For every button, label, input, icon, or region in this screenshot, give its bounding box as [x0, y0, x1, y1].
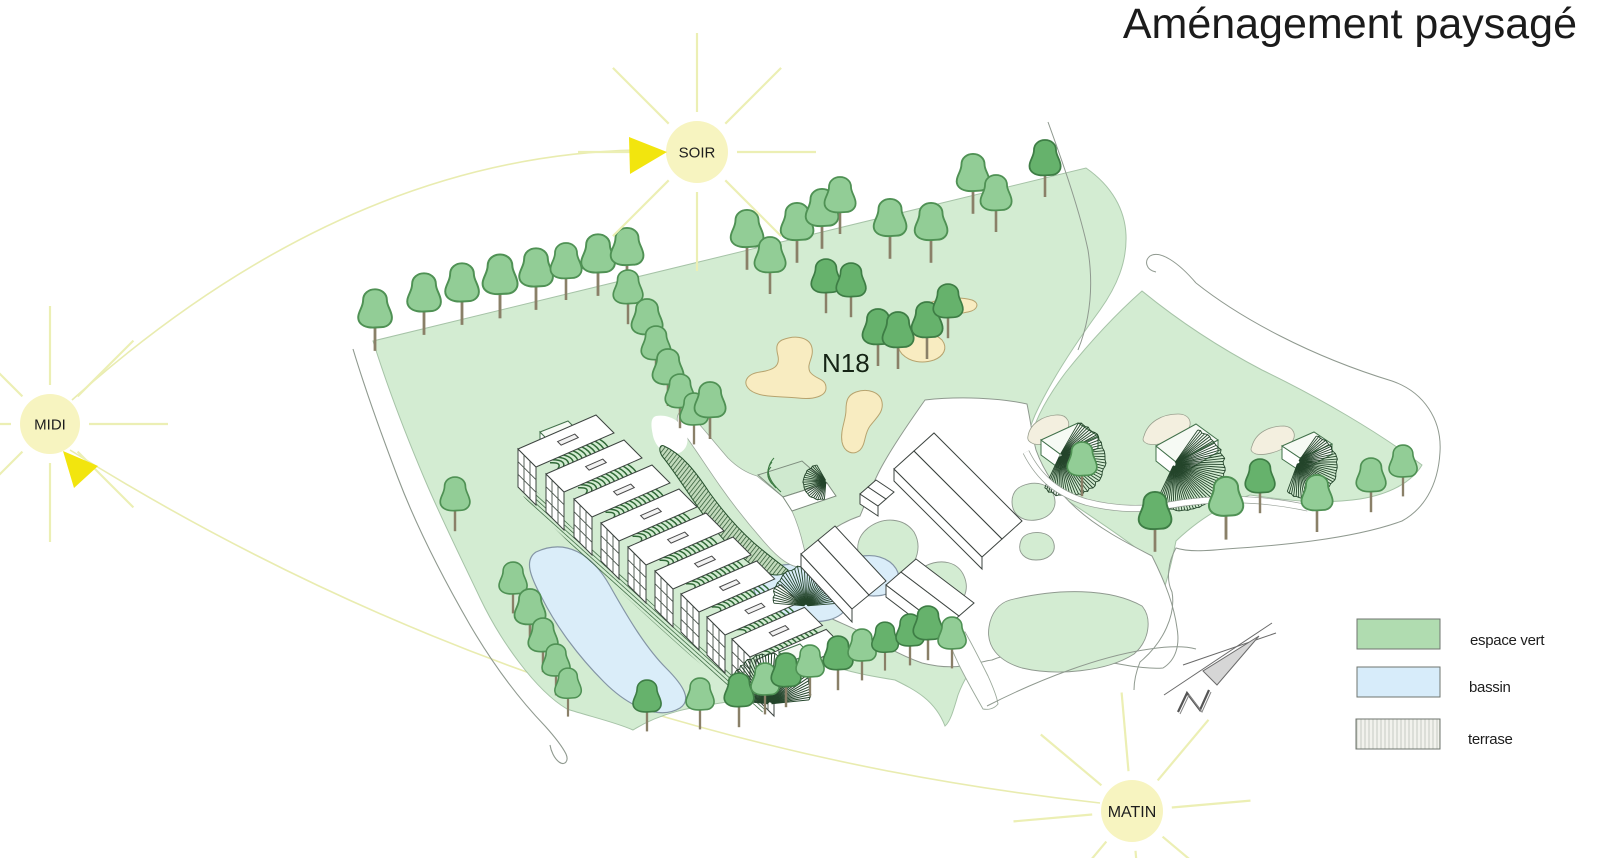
- svg-text:SOIR: SOIR: [679, 144, 716, 161]
- svg-text:terrase: terrase: [1468, 731, 1513, 748]
- svg-text:bassin: bassin: [1469, 679, 1511, 696]
- svg-text:espace vert: espace vert: [1470, 632, 1545, 649]
- svg-text:N18: N18: [822, 348, 870, 378]
- svg-text:Aménagement paysagé: Aménagement paysagé: [1123, 0, 1577, 48]
- svg-text:MIDI: MIDI: [34, 416, 66, 433]
- svg-text:MATIN: MATIN: [1108, 804, 1157, 821]
